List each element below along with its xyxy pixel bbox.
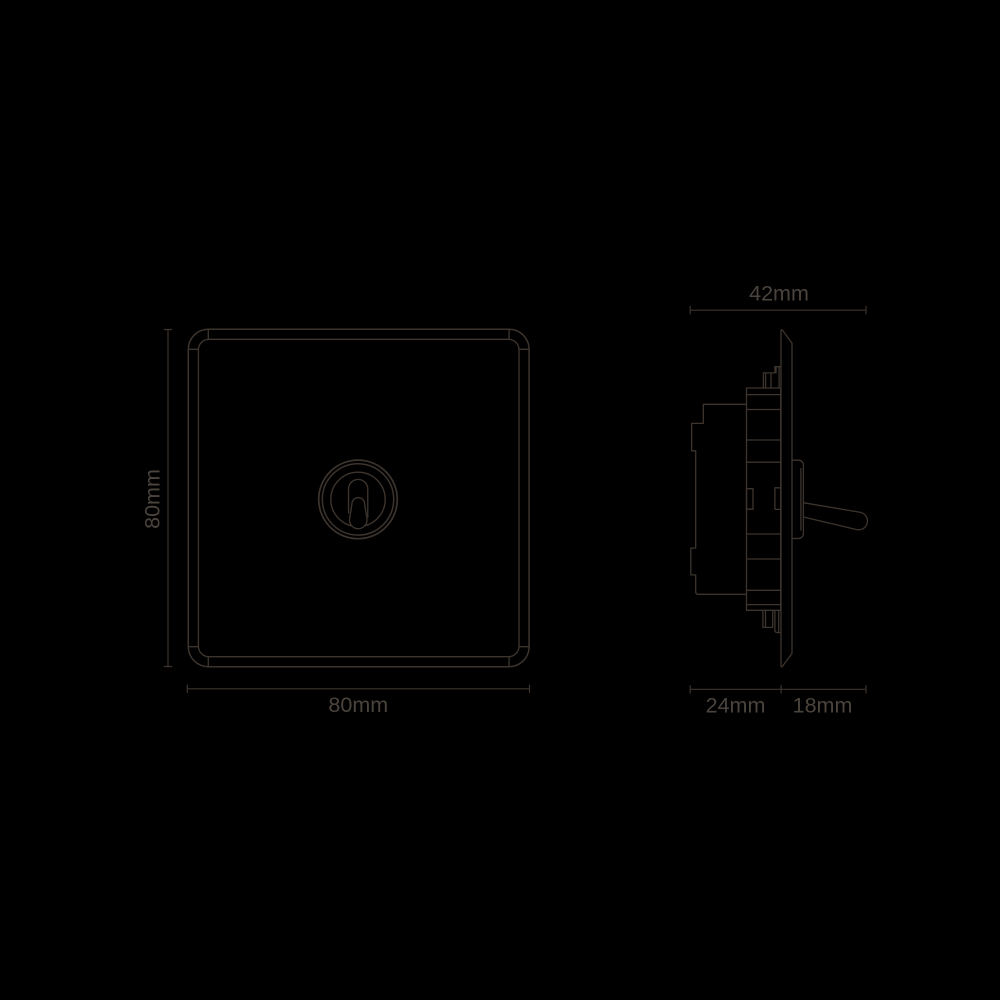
svg-text:80mm: 80mm <box>328 693 388 717</box>
svg-text:24mm: 24mm <box>706 694 766 718</box>
svg-text:80mm: 80mm <box>141 469 165 529</box>
svg-text:18mm: 18mm <box>793 694 853 718</box>
svg-text:42mm: 42mm <box>749 282 809 306</box>
